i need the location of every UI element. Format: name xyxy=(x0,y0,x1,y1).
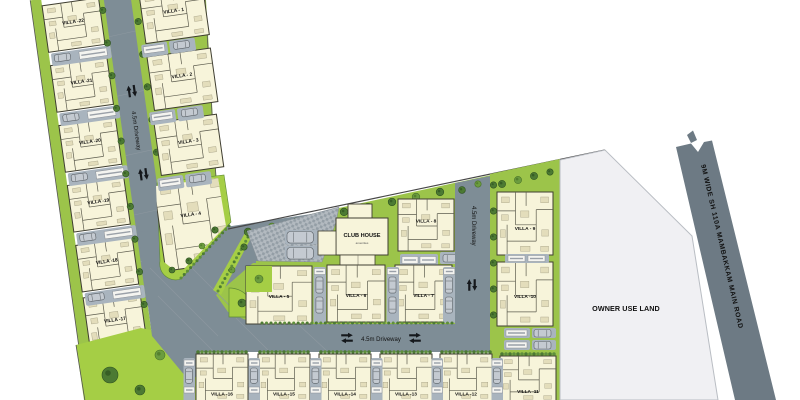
svg-text:VILLA -11: VILLA -11 xyxy=(517,389,539,395)
svg-text:OWNER USE LAND: OWNER USE LAND xyxy=(592,304,660,313)
svg-text:CLUB HOUSE: CLUB HOUSE xyxy=(344,233,381,239)
svg-text:VILLA -14: VILLA -14 xyxy=(334,391,356,397)
svg-text:VILLA - 6: VILLA - 6 xyxy=(346,293,367,299)
svg-text:4.5m Driveway: 4.5m Driveway xyxy=(361,337,401,343)
svg-text:VILLA -15: VILLA -15 xyxy=(273,391,295,397)
svg-text:VILLA -16: VILLA -16 xyxy=(211,391,233,397)
svg-text:VILLA -10: VILLA -10 xyxy=(514,294,536,300)
svg-text:VILLA - 9: VILLA - 9 xyxy=(515,226,536,232)
svg-text:VILLA - 5: VILLA - 5 xyxy=(269,294,290,300)
svg-text:VILLA -12: VILLA -12 xyxy=(455,391,477,397)
svg-text:amenities: amenities xyxy=(356,241,369,245)
svg-text:VILLA - 8: VILLA - 8 xyxy=(416,218,437,224)
svg-text:VILLA -13: VILLA -13 xyxy=(395,391,417,397)
svg-text:VILLA - 7: VILLA - 7 xyxy=(413,293,434,299)
svg-text:4.5m Driveway: 4.5m Driveway xyxy=(470,206,476,246)
